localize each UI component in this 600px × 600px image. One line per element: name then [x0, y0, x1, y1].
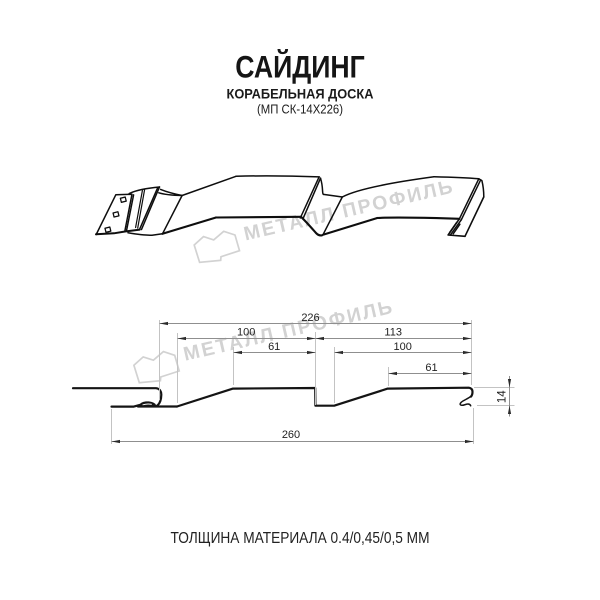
- svg-text:113: 113: [384, 327, 402, 339]
- svg-text:61: 61: [425, 362, 437, 374]
- svg-text:САЙДИНГ: САЙДИНГ: [235, 49, 365, 85]
- svg-text:100: 100: [394, 341, 412, 353]
- svg-text:260: 260: [282, 429, 300, 441]
- svg-text:100: 100: [237, 327, 255, 339]
- svg-text:МЕТАЛЛ ПРОФИЛЬ: МЕТАЛЛ ПРОФИЛЬ: [242, 175, 457, 245]
- svg-text:14: 14: [497, 390, 509, 403]
- svg-text:(МП СК-14Х226): (МП СК-14Х226): [257, 102, 343, 117]
- svg-text:61: 61: [268, 341, 280, 353]
- svg-text:226: 226: [301, 312, 319, 324]
- svg-text:КОРАБЕЛЬНАЯ ДОСКА: КОРАБЕЛЬНАЯ ДОСКА: [227, 87, 374, 102]
- svg-text:ТОЛЩИНА МАТЕРИАЛА 0.4/0,45/0,5: ТОЛЩИНА МАТЕРИАЛА 0.4/0,45/0,5 ММ: [171, 530, 430, 547]
- svg-text:МЕТАЛЛ ПРОФИЛЬ: МЕТАЛЛ ПРОФИЛЬ: [181, 296, 396, 366]
